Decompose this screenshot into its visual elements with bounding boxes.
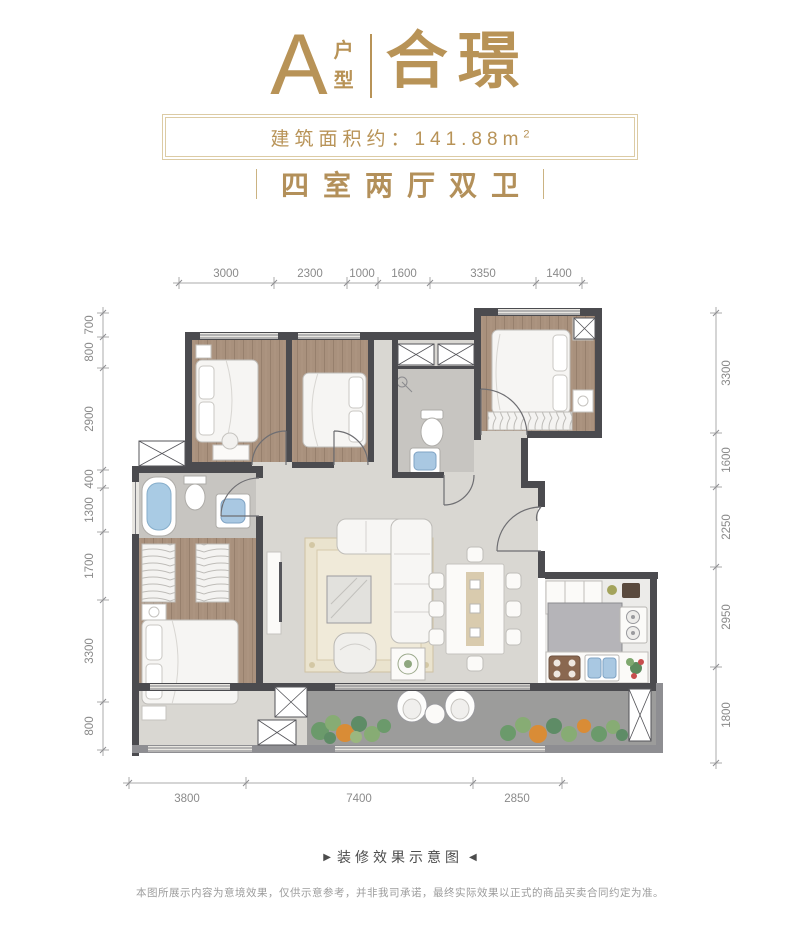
pillow — [349, 411, 363, 442]
dining-chair — [506, 573, 521, 589]
wardrobe-bedroom3 — [488, 412, 572, 430]
window-master-balcony — [150, 684, 230, 690]
flower — [638, 659, 644, 665]
floorplan-poster: A 户 型 合璟 建筑面积约：141.88m2 四室两厅双卫 — [0, 0, 800, 933]
balcony-table — [425, 704, 445, 724]
tableware — [470, 604, 480, 613]
dim-left-8: 800 — [84, 716, 96, 735]
wall — [192, 462, 252, 468]
dim-left-4: 400 — [84, 469, 96, 488]
dining-chair — [467, 656, 483, 671]
shaft — [574, 318, 595, 339]
caption-arrow-left-icon: ▶ — [317, 852, 337, 863]
pillow — [199, 402, 214, 435]
dim-left-6: 1700 — [84, 553, 96, 579]
caption-row: ▶装修效果示意图◀ — [0, 847, 800, 867]
tableware — [470, 628, 480, 637]
pillow — [199, 366, 214, 399]
floor-plan: 3000 2300 1000 1600 3350 1400 700 800 29… — [0, 0, 800, 933]
plant — [626, 658, 634, 666]
wall — [396, 366, 474, 369]
window-bedroom3 — [498, 309, 580, 315]
pillow — [146, 664, 162, 699]
tv-cabinet — [267, 552, 281, 634]
pillow — [146, 625, 162, 660]
wall — [368, 340, 374, 462]
pillow — [349, 377, 363, 408]
tableware — [470, 580, 480, 589]
wall — [527, 431, 602, 438]
dim-left-3: 2900 — [84, 406, 96, 432]
dining-chair — [506, 601, 521, 617]
burner-center — [631, 631, 635, 635]
dim-bottom-3: 2850 — [504, 793, 530, 805]
toilet — [185, 484, 205, 510]
stove-knob — [569, 671, 576, 678]
dim-top-1: 3000 — [213, 268, 239, 280]
wall — [185, 332, 192, 470]
dim-right-5: 1800 — [721, 702, 733, 728]
kitchen-furniture — [546, 581, 648, 683]
pillow — [553, 375, 567, 411]
wall — [292, 462, 334, 468]
plant — [404, 660, 412, 668]
dim-top-5: 3350 — [470, 268, 496, 280]
toilet — [421, 418, 443, 446]
dining-chair — [506, 629, 521, 645]
stove-knob — [554, 660, 561, 667]
wardrobe-master-1 — [142, 544, 175, 602]
bathtub-water — [147, 483, 171, 530]
dim-top-2: 2300 — [297, 268, 323, 280]
dining-chair — [429, 573, 444, 589]
dining-chair — [429, 629, 444, 645]
flower — [631, 673, 637, 679]
toilet-tank — [184, 476, 206, 484]
dim-left-2: 800 — [84, 342, 96, 361]
burner-center — [631, 615, 635, 619]
appliance — [622, 583, 640, 598]
dining-chair — [429, 601, 444, 617]
shaft — [258, 720, 296, 745]
dim-right-4: 2950 — [721, 604, 733, 630]
balcony-sliding-door — [335, 684, 530, 690]
dim-left-5: 1300 — [84, 497, 96, 523]
caption-text: 装修效果示意图 — [337, 849, 463, 865]
sink-basin — [603, 658, 616, 678]
dim-left-1: 700 — [84, 315, 96, 334]
wall — [521, 438, 528, 488]
shaft — [629, 689, 651, 741]
dim-top-4: 1600 — [391, 268, 417, 280]
sink — [221, 499, 245, 523]
rug-ornament — [309, 662, 315, 668]
wall — [474, 308, 481, 440]
balcony-right-wall — [656, 683, 663, 753]
chair — [222, 433, 238, 449]
nightstand — [142, 706, 166, 720]
nightstand — [196, 345, 211, 358]
shaft — [275, 687, 307, 717]
sofa-body — [391, 519, 432, 643]
stove — [549, 656, 580, 680]
exterior-patch — [528, 438, 545, 481]
window-balcony-outer — [335, 746, 545, 752]
wall — [392, 340, 398, 478]
wall — [538, 481, 545, 507]
window-master-bath — [132, 482, 139, 534]
wall — [286, 340, 292, 462]
wall — [538, 551, 545, 578]
wall — [256, 466, 263, 478]
dining-chair — [467, 547, 483, 562]
nightstand — [142, 604, 166, 620]
wall — [650, 572, 657, 690]
dim-chain-left — [97, 307, 109, 756]
kitchen-island — [548, 603, 622, 655]
pillow — [553, 335, 567, 371]
dim-right-3: 2250 — [721, 514, 733, 540]
stove-knob — [554, 671, 561, 678]
dim-right-1: 3300 — [721, 360, 733, 386]
window-bedroom2 — [298, 333, 360, 339]
nightstand — [573, 390, 593, 412]
wall — [392, 472, 444, 478]
wardrobe-master-2 — [196, 544, 229, 602]
sink-basin — [588, 658, 601, 678]
shaft — [139, 441, 185, 466]
balcony-chair-seat — [403, 699, 421, 719]
rug-ornament — [309, 542, 315, 548]
stove-knob — [569, 660, 576, 667]
dim-bottom-2: 7400 — [346, 793, 372, 805]
shaft — [438, 344, 474, 365]
window-bedroom1 — [200, 333, 278, 339]
dim-bottom-1: 3800 — [174, 793, 200, 805]
bowl — [607, 585, 617, 595]
caption-arrow-right-icon: ◀ — [463, 852, 483, 863]
armchair — [334, 633, 376, 673]
shaft — [398, 344, 434, 365]
dim-left-7: 3300 — [84, 638, 96, 664]
window-master-outer — [148, 746, 252, 752]
balcony-chair-seat — [451, 699, 469, 719]
dim-top-6: 1400 — [546, 268, 572, 280]
wall — [256, 516, 263, 688]
wall — [545, 572, 658, 579]
dim-top-3: 1000 — [349, 268, 375, 280]
tv — [279, 562, 282, 622]
wall — [595, 308, 602, 438]
dim-chain-bottom — [123, 777, 568, 789]
dim-right-2: 1600 — [721, 447, 733, 473]
disclaimer-text: 本图所展示内容为意境效果，仅供示意参考，并非我司承诺，最终实际效果以正式的商品买… — [0, 885, 800, 900]
sink — [414, 452, 436, 470]
